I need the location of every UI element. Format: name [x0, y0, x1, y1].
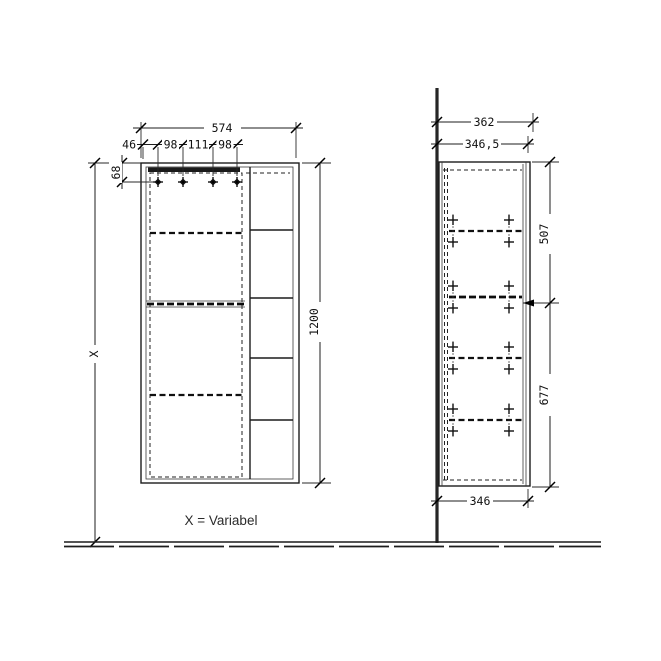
dim-front-hole-gap-b: 111 [188, 138, 209, 152]
caption-variabel: X = Variabel [185, 513, 258, 528]
shelf-arrow [523, 300, 534, 307]
side-dimensions: 362 346,5 507 677 346 [431, 113, 559, 508]
drawing-canvas: 574 46 98 111 98 68 1200 X [0, 0, 661, 661]
dim-front-top-offset: 68 [109, 166, 123, 180]
dim-front-wall-height: X [87, 350, 101, 357]
dim-side-body-depth: 346,5 [465, 137, 500, 151]
dim-side-base-depth: 346 [470, 494, 491, 508]
dim-side-upper-height: 507 [537, 224, 551, 245]
door-outline-dashed [150, 173, 242, 477]
mounting-hole-markers [153, 177, 242, 187]
dim-front-hole-gap-a: 98 [164, 138, 178, 152]
door-top-edge [148, 168, 240, 173]
shelf-pin-markers [448, 214, 514, 437]
dim-front-total-height: 1200 [307, 308, 321, 336]
dim-side-total-depth: 362 [474, 115, 495, 129]
dim-front-total-width: 574 [212, 121, 233, 135]
dim-front-hole-gap-c: 98 [218, 138, 232, 152]
dim-front-hole-offset: 46 [122, 138, 136, 152]
side-view [437, 88, 530, 543]
dim-side-lower-height: 677 [537, 385, 551, 406]
cabinet-technical-drawing: 574 46 98 111 98 68 1200 X [0, 0, 661, 661]
floor-line [64, 542, 601, 547]
front-view [141, 163, 299, 483]
